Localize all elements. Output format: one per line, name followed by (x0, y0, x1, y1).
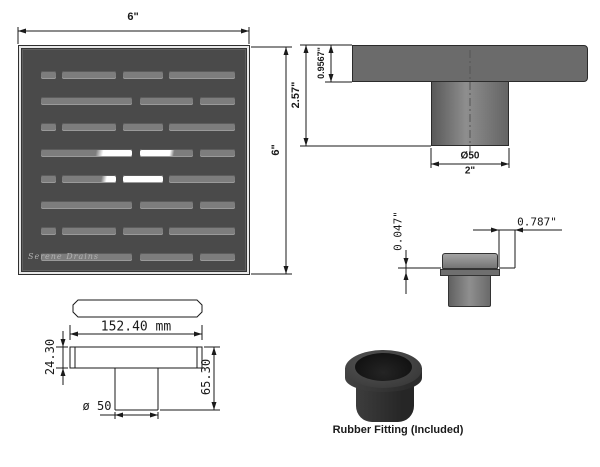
grate-slot (200, 201, 235, 209)
grate-slot (169, 123, 235, 131)
grate-slot-area (41, 49, 235, 271)
label-side-total-height: 2.57" (290, 82, 302, 109)
label-bottom-outlet-diameter: ø 50 (83, 399, 112, 413)
grate-slot (62, 123, 116, 131)
dim-top-width (18, 27, 249, 44)
grate-slot (123, 175, 163, 183)
grate-slot (200, 97, 235, 105)
grate-slot (169, 227, 235, 235)
grate-slot (41, 71, 56, 79)
grate-slot (62, 227, 116, 235)
label-detail-offset: 0.787" (517, 216, 557, 229)
grate-slot (62, 71, 116, 79)
label-detail-lip: 0.047" (392, 211, 405, 251)
label-top-width: 6" (127, 11, 138, 23)
rubber-fitting-caption: Rubber Fitting (Included) (318, 424, 478, 436)
label-bottom-total-height: 65.30 (199, 359, 213, 395)
grate-row (41, 71, 235, 79)
side-view-outlet-pipe (431, 82, 509, 146)
grate-top-view (21, 48, 247, 272)
dim-top-height (251, 47, 292, 274)
grate-slot (169, 175, 235, 183)
label-side-outlet-width: 2" (465, 166, 475, 177)
grate-row (41, 227, 235, 235)
label-top-height: 6" (270, 144, 282, 155)
grate-slot (140, 201, 193, 209)
side-view-body (352, 45, 588, 82)
grate-slot (140, 149, 193, 157)
grate-row (41, 97, 235, 105)
grate-row (41, 175, 235, 183)
grate-slot (200, 149, 235, 157)
grate-slot (62, 175, 116, 183)
grate-slot (169, 71, 235, 79)
label-side-outlet-diameter: Ø50 (461, 151, 480, 162)
grate-slot (41, 97, 132, 105)
detail-view-pipe (448, 276, 491, 307)
grate-slot (41, 149, 132, 157)
grate-slot (41, 227, 56, 235)
brand-logo: Serene Drains (28, 252, 99, 261)
grate-slot (200, 253, 235, 261)
drain-dimension-diagram: Serene Drains Rubber Fitting (Included) (0, 0, 600, 467)
grate-row (41, 149, 235, 157)
detail-view-lip (440, 269, 500, 276)
grate-row (41, 201, 235, 209)
grate-slot (41, 123, 56, 131)
dim-bottom-flange-height (56, 331, 68, 385)
dim-detail-lip (398, 250, 441, 294)
dim-bottom-outlet (100, 412, 158, 419)
label-bottom-flange-height: 24.30 (43, 339, 57, 375)
grate-slot (140, 253, 193, 261)
label-bottom-width: 152.40 mm (101, 320, 171, 335)
lineart-grate-slab (73, 300, 202, 317)
grate-slot (140, 97, 193, 105)
grate-row (41, 123, 235, 131)
dim-side-top-thickness (325, 45, 352, 82)
detail-view-flange (442, 253, 498, 269)
label-side-top-thickness: 0.9567" (316, 47, 326, 79)
grate-slot (41, 175, 56, 183)
grate-slot (123, 227, 163, 235)
grate-slot (123, 123, 163, 131)
grate-slot (41, 201, 132, 209)
grate-slot (123, 71, 163, 79)
rubber-fitting-hole (355, 353, 412, 381)
